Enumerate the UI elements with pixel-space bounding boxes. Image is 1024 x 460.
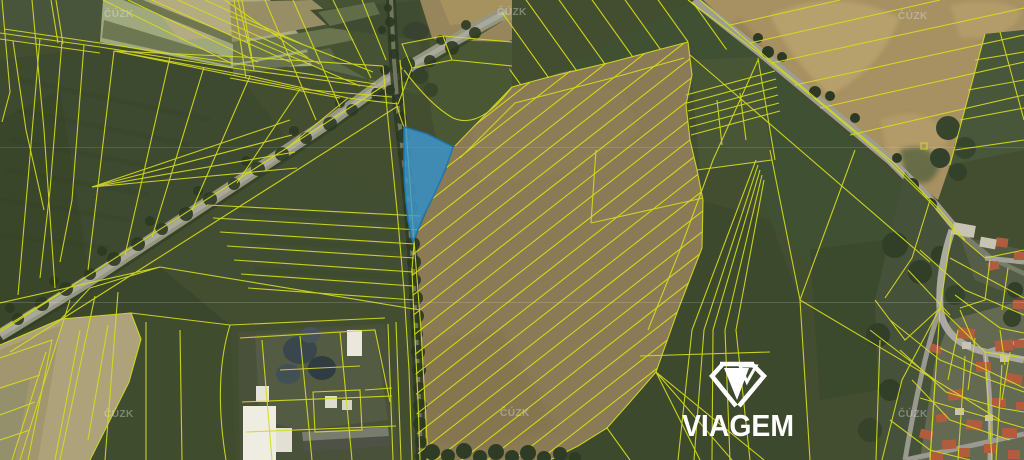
svg-text:ČÚZK: ČÚZK: [497, 5, 527, 18]
svg-text:ČÚZK: ČÚZK: [500, 406, 530, 419]
svg-text:ČÚZK: ČÚZK: [898, 9, 928, 22]
svg-text:ČÚZK: ČÚZK: [104, 407, 134, 420]
svg-text:ČÚZK: ČÚZK: [104, 7, 134, 20]
svg-text:ČÚZK: ČÚZK: [898, 407, 928, 420]
svg-text:VIAGEM: VIAGEM: [682, 408, 794, 443]
